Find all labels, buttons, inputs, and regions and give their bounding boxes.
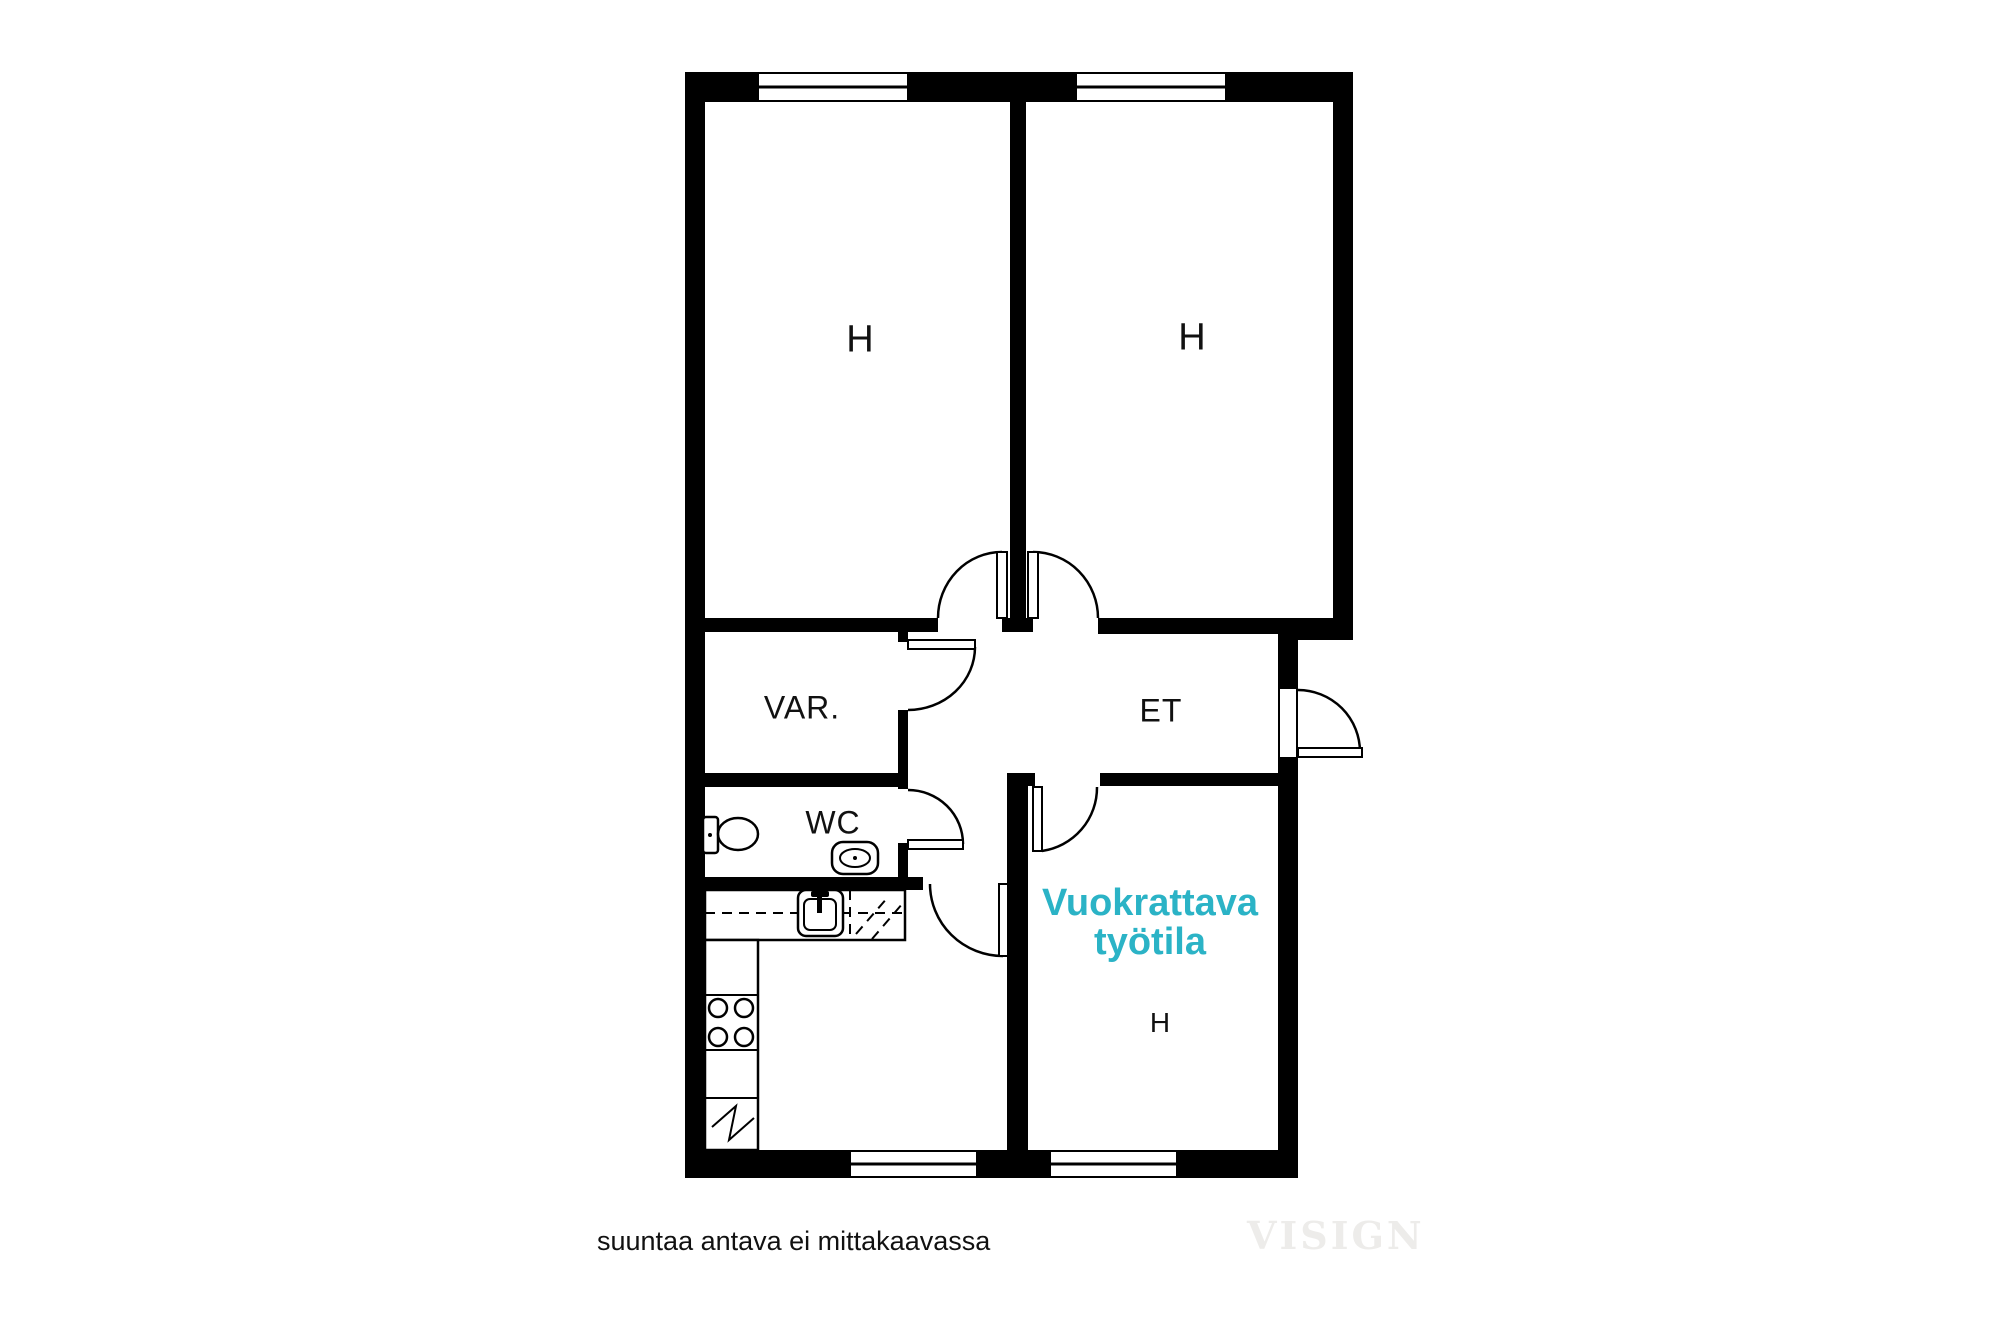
- room-label-wc: WC: [805, 805, 860, 842]
- wall-rooms-hall-left: [705, 618, 938, 632]
- wc-sink-icon: [832, 842, 878, 874]
- wall-bottom: [685, 1150, 1298, 1178]
- toilet-icon: [703, 817, 758, 853]
- door-workspace: [1033, 787, 1097, 851]
- floor-plan-drawing: [0, 0, 2000, 1333]
- room-label-entry-hall: ET: [1140, 693, 1183, 730]
- wall-left: [685, 72, 705, 1178]
- wall-rooms-hall-mid: [1002, 618, 1033, 632]
- workspace-highlight-label: Vuokrattava työtila: [1042, 884, 1258, 962]
- wall-rooms-hall-right: [1098, 618, 1353, 634]
- workspace-highlight-line1: Vuokrattava: [1042, 884, 1258, 923]
- workspace-highlight-line2: työtila: [1042, 923, 1258, 962]
- kitchen-fixtures: [705, 890, 905, 1150]
- room-label-top-right: H: [1178, 317, 1205, 360]
- visign-watermark: VISIGN: [1247, 1213, 1425, 1258]
- door-storage: [908, 640, 975, 710]
- kitchen-sink-icon: [798, 890, 843, 936]
- room-label-workspace: H: [1150, 1007, 1170, 1039]
- wall-right-upper: [1333, 72, 1353, 640]
- room-label-storage: VAR.: [764, 690, 840, 727]
- scale-disclaimer-text: suuntaa antava ei mittakaavassa: [597, 1226, 990, 1257]
- door-wc: [908, 790, 963, 849]
- door-room-top-left: [938, 552, 1007, 618]
- wall-workspace-left: [1007, 773, 1028, 1150]
- wall-var-right-a: [898, 632, 908, 642]
- window-bottom-kitchen: [850, 1151, 977, 1177]
- window-top-left: [758, 73, 908, 101]
- wall-kitchen-top: [685, 877, 923, 890]
- wall-var-right-b: [898, 710, 908, 789]
- room-label-top-left: H: [846, 319, 873, 362]
- floor-plan-page: H H VAR. WC ET Vuokrattava työtila H suu…: [0, 0, 2000, 1333]
- wall-et-bottom-left: [1007, 773, 1035, 786]
- window-top-right: [1076, 73, 1226, 101]
- wall-var-wc-divider: [705, 773, 908, 787]
- door-entrance: [1279, 688, 1362, 758]
- door-kitchen: [930, 884, 1008, 956]
- window-bottom-workspace: [1050, 1151, 1177, 1177]
- door-room-top-right: [1028, 552, 1098, 618]
- wall-center-divider: [1010, 102, 1026, 618]
- walls: [685, 72, 1353, 1178]
- wall-et-bottom-right: [1100, 773, 1278, 786]
